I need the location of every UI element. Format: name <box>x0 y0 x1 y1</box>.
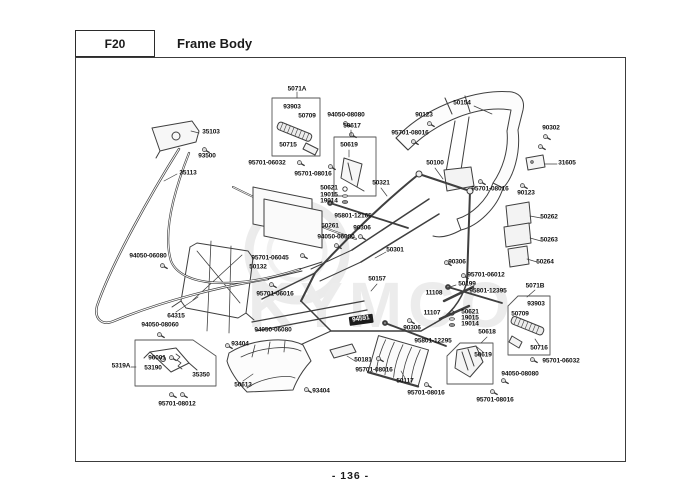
exploded-diagram: KYMCO <box>0 0 700 495</box>
section-code: F20 <box>75 30 155 57</box>
center-plates-art <box>253 187 322 248</box>
page-number: - 136 - <box>75 470 626 482</box>
side-pads-art <box>504 202 531 267</box>
plate-art <box>526 155 545 170</box>
sub-frame-art <box>172 241 254 333</box>
floor-board-art <box>368 336 428 387</box>
under-cover-art <box>227 340 311 392</box>
catalog-page: F20 Frame Body KYMCO <box>0 0 700 495</box>
rear-carrier-art <box>396 91 524 236</box>
bracket-top-art <box>341 158 364 191</box>
stand-art <box>144 348 197 372</box>
page-title: Frame Body <box>177 36 252 51</box>
watermark-text: KYMCO <box>248 269 516 341</box>
bracket-bottom-art <box>455 346 483 377</box>
bracket-50181-art <box>330 344 356 358</box>
footrest-left-art <box>276 121 318 155</box>
